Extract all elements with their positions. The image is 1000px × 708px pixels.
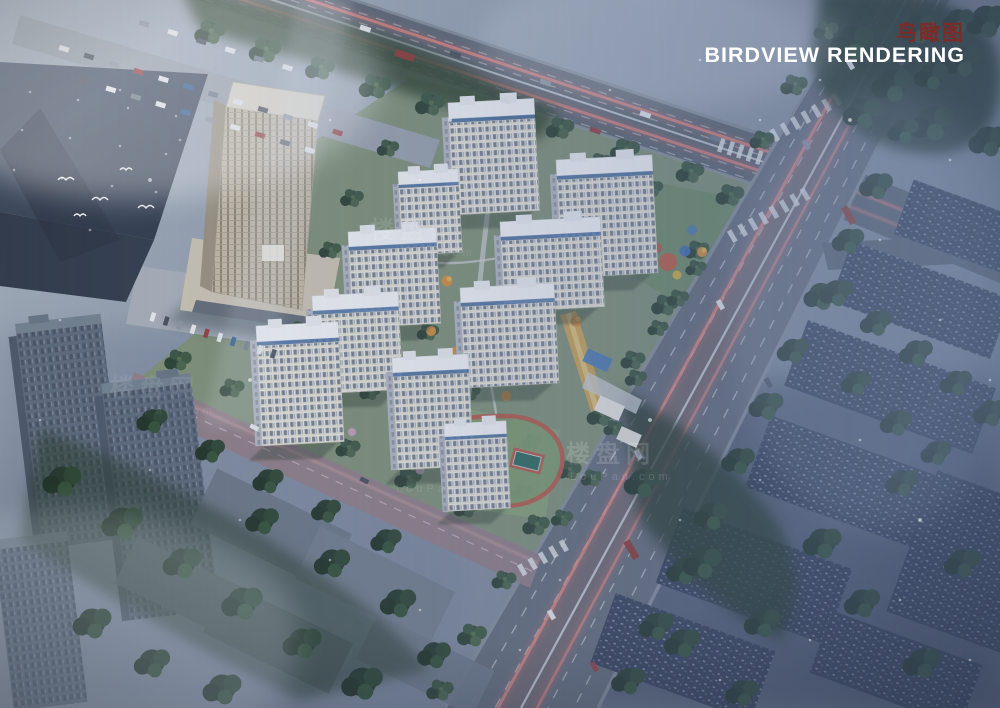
svg-text:LouPan.com: LouPan.com (570, 471, 672, 483)
vignette (0, 0, 1000, 708)
birdview-rendering-image: 楼盘网 LouPan.com 楼盘网 LouPan.com 楼盘网 LouPan… (0, 0, 1000, 708)
watermark: LouPan.com (396, 483, 498, 495)
fog-and-light (0, 0, 1000, 708)
svg-text:LouPan.com: LouPan.com (114, 405, 216, 417)
svg-text:楼盘网: 楼盘网 (370, 216, 460, 244)
page-title-en: BIRDVIEW RENDERING (705, 43, 965, 67)
svg-text:LouPan.com: LouPan.com (396, 483, 498, 495)
watermark: 楼盘网 LouPan.com (566, 440, 672, 483)
scene-canvas: 楼盘网 LouPan.com 楼盘网 LouPan.com 楼盘网 LouPan… (0, 0, 1000, 708)
svg-text:楼盘网: 楼盘网 (566, 440, 656, 468)
page-title-cn: 鸟瞰图 (896, 21, 965, 45)
watermark: 楼盘网 LouPan.com (370, 216, 476, 259)
watermark: 楼盘网 LouPan.com (110, 374, 216, 417)
svg-text:楼盘网: 楼盘网 (110, 374, 200, 402)
svg-text:LouPan.com: LouPan.com (374, 247, 476, 259)
